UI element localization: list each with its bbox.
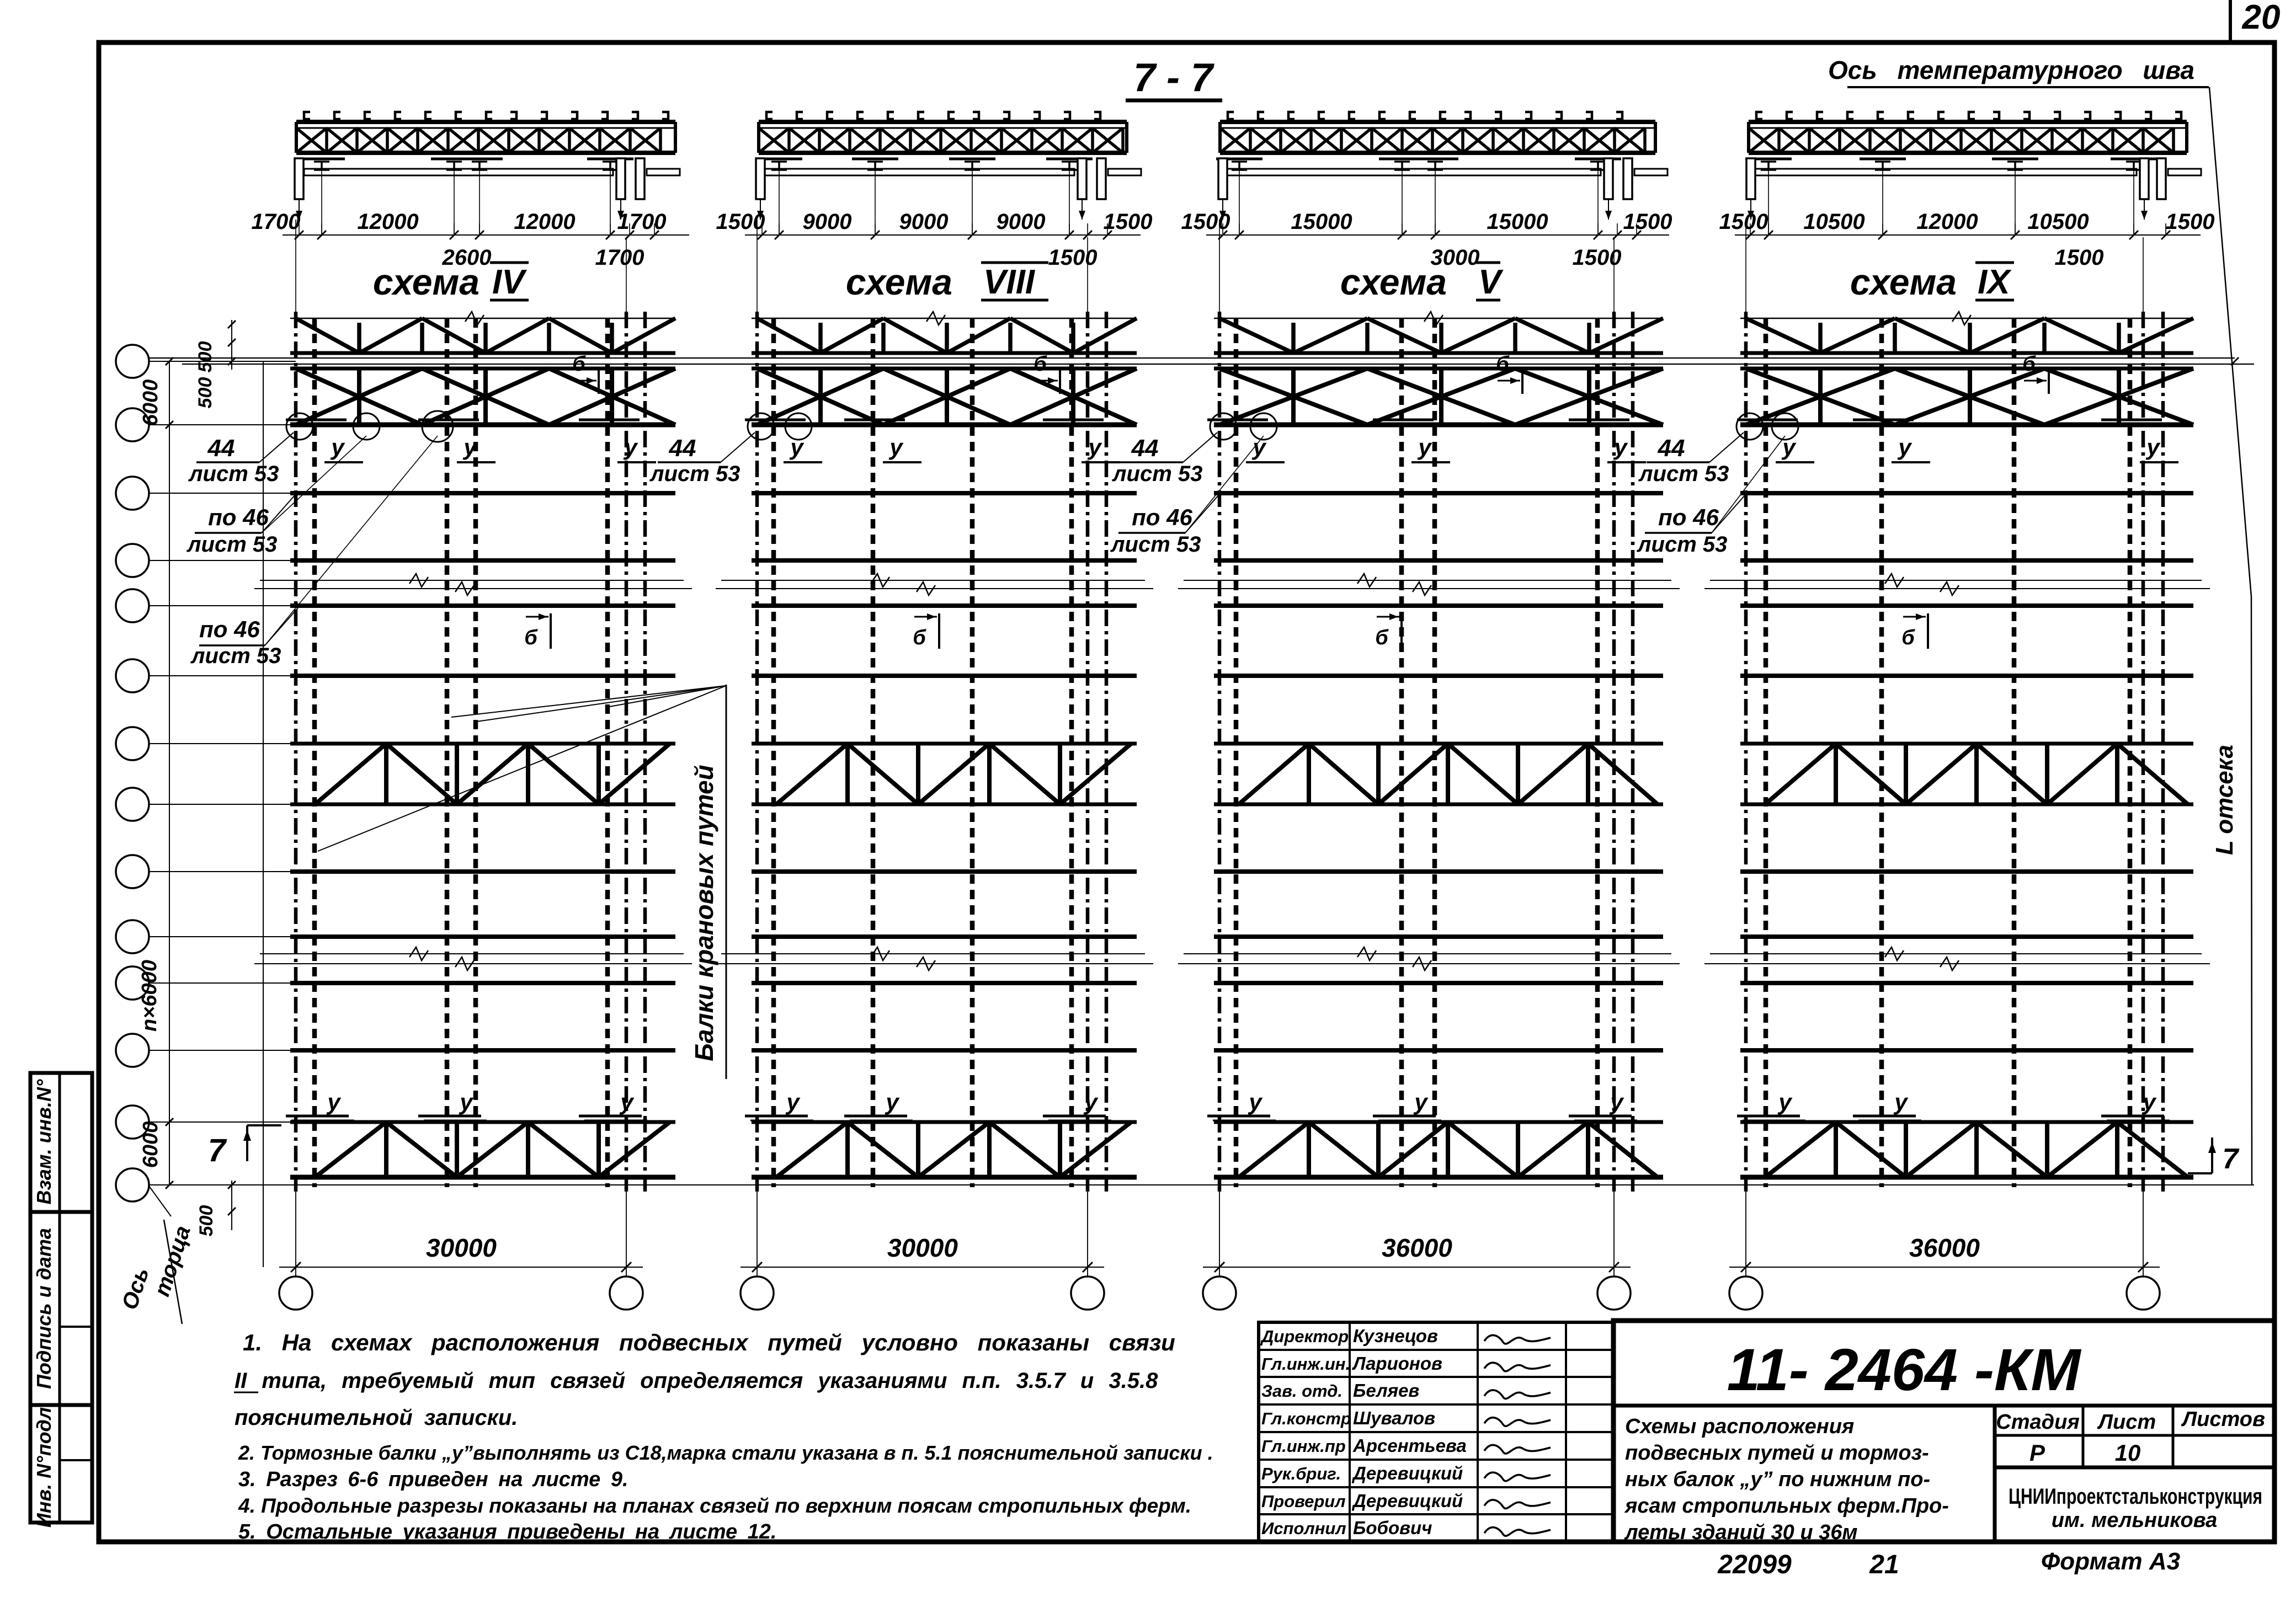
svg-text:3. Разрез 6-6 приведен на: 3. Разрез 6-6 приведен на листе 9. bbox=[238, 1468, 628, 1491]
svg-text:15000: 15000 bbox=[1487, 210, 1548, 234]
svg-text:44: 44 bbox=[1131, 435, 1159, 462]
svg-text:ных балок „у” по нижним по-: ных балок „у” по нижним по- bbox=[1625, 1468, 1930, 1491]
svg-text:по 46: по 46 bbox=[199, 616, 260, 642]
svg-text:лист 53: лист 53 bbox=[190, 644, 281, 668]
svg-text:9000: 9000 bbox=[899, 210, 949, 234]
svg-text:10: 10 bbox=[2115, 1440, 2141, 1466]
svg-text:у: у bbox=[1417, 434, 1432, 460]
svg-text:б: б bbox=[524, 626, 538, 649]
svg-text:Арсентьева: Арсентьева bbox=[1352, 1435, 1467, 1456]
svg-text:лист 53: лист 53 bbox=[1637, 532, 1728, 557]
svg-text:у: у bbox=[330, 434, 345, 460]
svg-text:лист 53: лист 53 bbox=[1110, 532, 1201, 557]
svg-text:7: 7 bbox=[2223, 1143, 2240, 1175]
svg-text:2. Тормозные балки „у”выполн: 2. Тормозные балки „у”выполнять из С18,м… bbox=[238, 1441, 1213, 1464]
svg-text:лист 53: лист 53 bbox=[649, 462, 741, 486]
svg-text:20: 20 bbox=[2242, 0, 2281, 36]
svg-text:по 46: по 46 bbox=[208, 504, 269, 530]
svg-text:схема: схема bbox=[1340, 261, 1447, 302]
svg-text:10500: 10500 bbox=[1803, 210, 1864, 234]
svg-text:им. мельникова: им. мельникова bbox=[2052, 1509, 2218, 1532]
svg-text:Рук.бриг.: Рук.бриг. bbox=[1261, 1464, 1341, 1483]
svg-text:12000: 12000 bbox=[357, 210, 418, 234]
svg-text:у: у bbox=[1893, 1089, 1909, 1115]
svg-text:1500: 1500 bbox=[2166, 210, 2215, 234]
svg-text:36000: 36000 bbox=[1909, 1233, 1980, 1262]
svg-text:Взам. инв.N°: Взам. инв.N° bbox=[33, 1079, 55, 1205]
svg-text:6000: 6000 bbox=[139, 380, 162, 426]
svg-text:30000: 30000 bbox=[426, 1233, 497, 1262]
svg-text:б: б bbox=[1375, 626, 1389, 649]
svg-text:б: б bbox=[1901, 626, 1915, 649]
svg-text:лист 53: лист 53 bbox=[187, 532, 278, 557]
svg-text:12000: 12000 bbox=[1916, 210, 1978, 234]
svg-text:у: у bbox=[459, 1089, 474, 1115]
svg-text:у: у bbox=[623, 434, 638, 460]
svg-text:у: у bbox=[1777, 1089, 1793, 1115]
svg-text:Формат А3: Формат А3 bbox=[2041, 1548, 2180, 1575]
svg-text:36000: 36000 bbox=[1382, 1233, 1452, 1262]
svg-text:n×6000: n×6000 bbox=[138, 960, 161, 1032]
svg-text:V: V bbox=[1478, 263, 1504, 301]
svg-text:у: у bbox=[785, 1089, 801, 1115]
svg-text:1500: 1500 bbox=[2055, 245, 2104, 270]
svg-text:у: у bbox=[1609, 1089, 1624, 1115]
svg-text:Лист: Лист bbox=[2097, 1411, 2156, 1434]
svg-text:Зав. отд.: Зав. отд. bbox=[1261, 1381, 1343, 1401]
svg-text:30000: 30000 bbox=[887, 1233, 958, 1262]
svg-text:12000: 12000 bbox=[514, 210, 575, 234]
svg-text:Деревицкий: Деревицкий bbox=[1351, 1491, 1463, 1511]
svg-text:1500: 1500 bbox=[1181, 210, 1230, 234]
svg-text:лист 53: лист 53 bbox=[188, 462, 279, 486]
svg-text:б: б bbox=[1034, 352, 1047, 376]
svg-text:1. На схемах расположения: 1. На схемах расположения подвесных путе… bbox=[243, 1329, 1175, 1355]
svg-text:15000: 15000 bbox=[1291, 210, 1352, 234]
svg-text:у: у bbox=[2145, 434, 2161, 460]
svg-text:подвесных путей и тормоз-: подвесных путей и тормоз- bbox=[1625, 1441, 1929, 1465]
svg-text:Деревицкий: Деревицкий bbox=[1351, 1463, 1463, 1483]
svg-text:1700: 1700 bbox=[252, 210, 301, 234]
svg-text:у: у bbox=[1248, 1089, 1263, 1115]
svg-text:у: у bbox=[1413, 1089, 1429, 1115]
svg-text:7: 7 bbox=[208, 1133, 227, 1168]
svg-text:500: 500 bbox=[195, 341, 216, 373]
svg-text:Гл.инж.ин.: Гл.инж.ин. bbox=[1261, 1354, 1350, 1374]
svg-text:1700: 1700 bbox=[617, 210, 667, 234]
svg-text:4. Продольные разрезы показ: 4. Продольные разрезы показаны на планах… bbox=[238, 1494, 1191, 1517]
svg-text:схема: схема bbox=[1850, 261, 1957, 302]
svg-text:Схемы расположения: Схемы расположения bbox=[1625, 1415, 1854, 1438]
svg-text:по 46: по 46 bbox=[1658, 504, 1719, 530]
svg-text:IV: IV bbox=[492, 263, 527, 301]
svg-text:Шувалов: Шувалов bbox=[1353, 1408, 1435, 1428]
svg-text:у: у bbox=[1897, 434, 1913, 460]
svg-text:у: у bbox=[619, 1089, 635, 1115]
svg-text:Гл.инж.пр: Гл.инж.пр bbox=[1261, 1436, 1346, 1456]
svg-text:1500: 1500 bbox=[1719, 210, 1768, 234]
svg-text:44: 44 bbox=[1658, 435, 1685, 462]
svg-text:VIII: VIII bbox=[983, 263, 1036, 301]
svg-text:у: у bbox=[1083, 1089, 1099, 1115]
svg-text:1500: 1500 bbox=[1104, 210, 1153, 234]
svg-text:II типа, требуемый тип связе: II типа, требуемый тип связей определяет… bbox=[235, 1369, 1158, 1393]
svg-text:7 - 7: 7 - 7 bbox=[1133, 56, 1214, 100]
svg-text:ЦНИИпроектстальконструкция: ЦНИИпроектстальконструкция bbox=[2009, 1484, 2262, 1509]
svg-text:лист 53: лист 53 bbox=[1112, 462, 1203, 486]
svg-text:10500: 10500 bbox=[2027, 210, 2089, 234]
svg-text:Беляев: Беляев bbox=[1353, 1380, 1419, 1401]
svg-text:500: 500 bbox=[195, 377, 216, 409]
svg-text:Р: Р bbox=[2029, 1440, 2045, 1466]
svg-text:у: у bbox=[326, 1089, 342, 1115]
svg-text:у: у bbox=[462, 434, 478, 460]
svg-text:пояснительной записки.: пояснительной записки. bbox=[235, 1406, 518, 1430]
svg-text:22099: 22099 bbox=[1717, 1550, 1792, 1579]
svg-text:1700: 1700 bbox=[595, 245, 644, 270]
svg-text:Кузнецов: Кузнецов bbox=[1353, 1326, 1438, 1346]
svg-text:L отсека: L отсека bbox=[2211, 745, 2238, 855]
svg-text:Стадия: Стадия bbox=[1996, 1411, 2079, 1434]
svg-text:у: у bbox=[2141, 1089, 2157, 1115]
svg-text:у: у bbox=[885, 1089, 900, 1115]
svg-text:Бобович: Бобович bbox=[1353, 1518, 1432, 1538]
svg-text:6000: 6000 bbox=[139, 1121, 162, 1168]
svg-text:9000: 9000 bbox=[803, 210, 852, 234]
svg-text:схема: схема bbox=[373, 261, 480, 302]
svg-text:у: у bbox=[888, 434, 904, 460]
svg-text:1500: 1500 bbox=[1623, 210, 1672, 234]
svg-text:схема: схема bbox=[846, 261, 952, 302]
svg-text:б: б bbox=[572, 352, 586, 376]
svg-text:б: б bbox=[2022, 352, 2036, 376]
svg-text:ясам стропильных ферм.Про-: ясам стропильных ферм.Про- bbox=[1624, 1494, 1949, 1518]
svg-text:500: 500 bbox=[196, 1205, 217, 1237]
svg-text:IX: IX bbox=[1978, 263, 2012, 301]
svg-text:б: б bbox=[1496, 352, 1510, 376]
svg-text:у: у bbox=[1087, 434, 1102, 460]
svg-text:Листов: Листов bbox=[2181, 1408, 2265, 1431]
svg-text:лист 53: лист 53 bbox=[1638, 462, 1729, 486]
svg-text:б: б bbox=[913, 626, 926, 649]
svg-text:по 46: по 46 bbox=[1132, 504, 1192, 530]
svg-text:Исполнил: Исполнил bbox=[1261, 1519, 1346, 1538]
svg-text:Подпись и дата: Подпись и дата bbox=[33, 1228, 55, 1389]
svg-text:1500: 1500 bbox=[716, 210, 765, 234]
svg-text:леты зданий 30 и 36м: леты зданий 30 и 36м bbox=[1624, 1521, 1858, 1544]
svg-text:Инв. N°подл.: Инв. N°подл. bbox=[33, 1402, 55, 1527]
svg-text:у: у bbox=[1613, 434, 1628, 460]
svg-text:11- 2464 -КМ: 11- 2464 -КМ bbox=[1727, 1336, 2082, 1403]
svg-text:1500: 1500 bbox=[1048, 245, 1098, 270]
svg-text:у: у bbox=[789, 434, 805, 460]
svg-text:Гл.констр: Гл.констр bbox=[1261, 1409, 1351, 1428]
svg-text:44: 44 bbox=[669, 435, 696, 462]
svg-text:9000: 9000 bbox=[997, 210, 1046, 234]
svg-text:44: 44 bbox=[207, 435, 235, 462]
svg-text:Ларионов: Ларионов bbox=[1352, 1353, 1442, 1374]
svg-text:5. Остальные указания приве: 5. Остальные указания приведены на листе… bbox=[238, 1520, 777, 1543]
svg-text:Ось температурного шва: Ось температурного шва bbox=[1828, 56, 2194, 84]
svg-text:21: 21 bbox=[1869, 1550, 1899, 1579]
svg-text:Директор: Директор bbox=[1260, 1327, 1349, 1346]
svg-text:Проверил: Проверил bbox=[1261, 1492, 1346, 1511]
svg-text:Балки крановых путей: Балки крановых путей bbox=[690, 765, 718, 1061]
